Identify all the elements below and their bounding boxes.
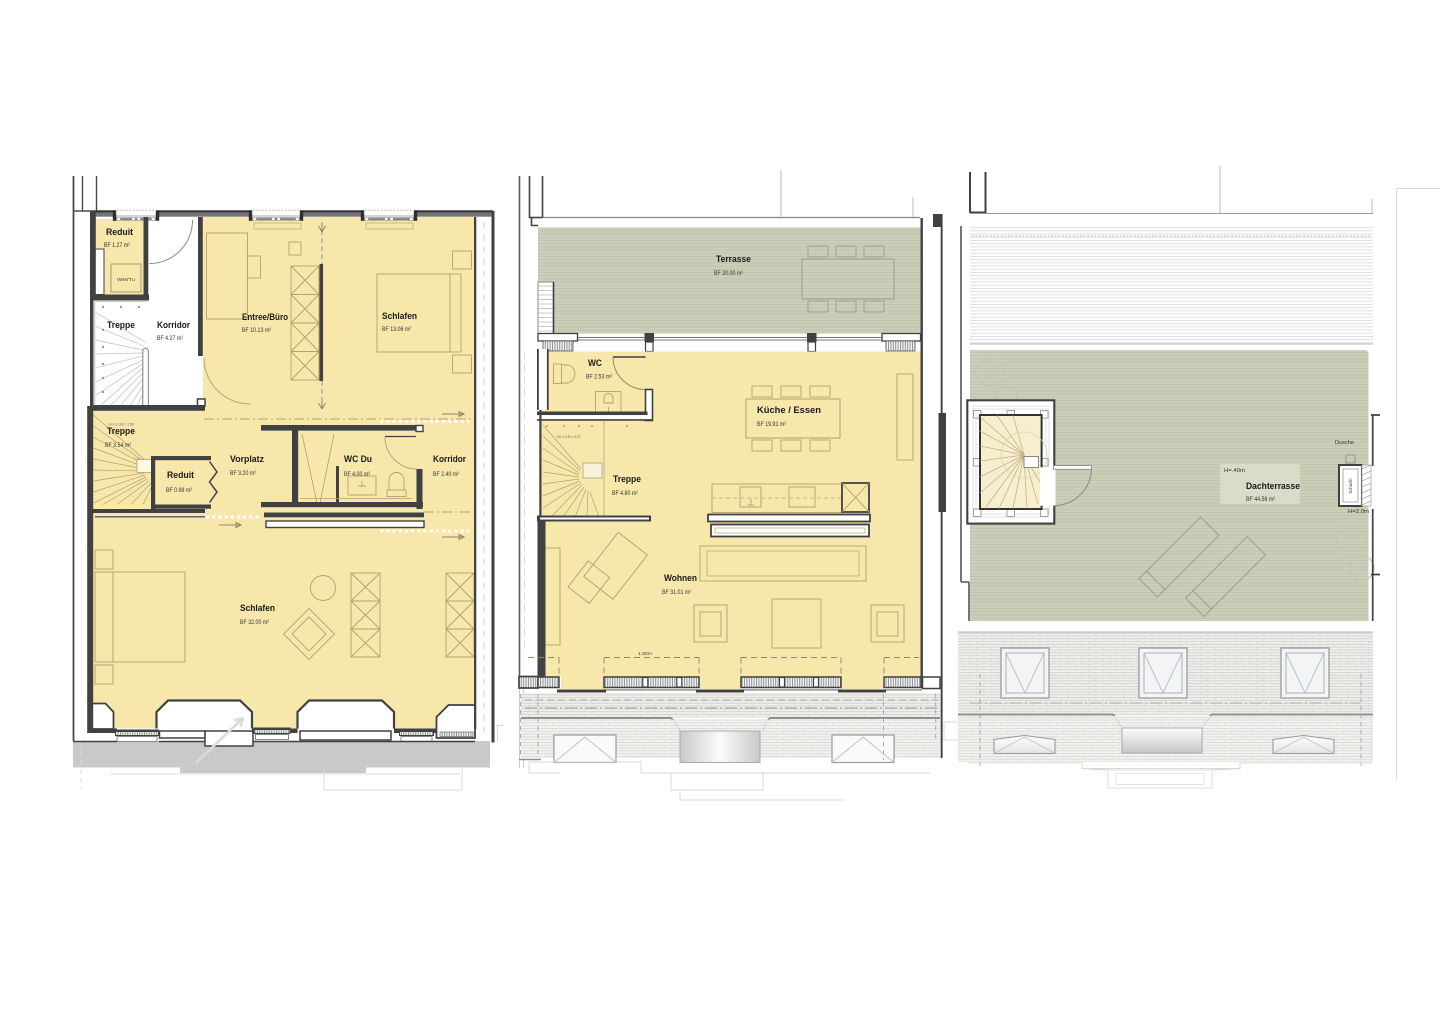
svg-text:Korridor: Korridor — [157, 320, 190, 331]
svg-text:Dusche: Dusche — [1335, 440, 1354, 446]
svg-text:BF 31.01 m²: BF 31.01 m² — [662, 590, 691, 596]
svg-text:WC: WC — [588, 358, 602, 369]
svg-text:WM/Tu: WM/Tu — [117, 277, 136, 282]
svg-text:BF 32.00 m²: BF 32.00 m² — [240, 620, 269, 626]
svg-text:BF 44.56 m²: BF 44.56 m² — [1246, 497, 1275, 503]
svg-text:Küche / Essen: Küche / Essen — [757, 405, 821, 416]
svg-text:BF 2.53 m²: BF 2.53 m² — [586, 375, 612, 381]
svg-text:Korridor: Korridor — [433, 454, 466, 465]
svg-text:Vorplatz: Vorplatz — [230, 454, 264, 465]
svg-text:Schacht: Schacht — [1348, 478, 1353, 494]
svg-text:WC Du: WC Du — [344, 454, 372, 465]
svg-text:BF 4.27 m²: BF 4.27 m² — [157, 336, 183, 342]
svg-text:BF 4.00 m²: BF 4.00 m² — [344, 472, 370, 478]
svg-text:BF 19.91 m²: BF 19.91 m² — [757, 422, 786, 428]
svg-text:Reduit: Reduit — [167, 470, 195, 481]
svg-text:Schlafen: Schlafen — [382, 311, 417, 322]
svg-text:Schlafen: Schlafen — [240, 603, 275, 614]
svg-text:Treppe: Treppe — [107, 320, 135, 331]
svg-text:H=.40m: H=.40m — [1224, 468, 1245, 474]
svg-text:Wohnen: Wohnen — [664, 573, 697, 584]
svg-text:Entree/Büro: Entree/Büro — [242, 312, 288, 323]
svg-text:BF 4.80 m²: BF 4.80 m² — [612, 491, 638, 497]
svg-text:BF 13.06 m²: BF 13.06 m² — [382, 327, 411, 333]
svg-text:H=2.0m: H=2.0m — [1348, 509, 1369, 515]
svg-text:BF 1.27 m²: BF 1.27 m² — [104, 243, 130, 249]
svg-text:BF 20.00 m²: BF 20.00 m² — [714, 271, 743, 277]
svg-text:BF 3.20 m²: BF 3.20 m² — [230, 471, 256, 477]
svg-text:Dachterrasse: Dachterrasse — [1246, 481, 1300, 492]
svg-text:BF 0.98 m²: BF 0.98 m² — [166, 488, 192, 494]
svg-text:Reduit: Reduit — [106, 227, 134, 238]
svg-text:Treppe: Treppe — [107, 426, 135, 437]
svg-text:BF 2.40 m²: BF 2.40 m² — [433, 472, 459, 478]
svg-text:BF 10.13 m²: BF 10.13 m² — [242, 328, 271, 334]
svg-text:BF 3.54 m²: BF 3.54 m² — [105, 443, 131, 449]
svg-text:Nx 0.18 x 0.27: Nx 0.18 x 0.27 — [557, 435, 581, 439]
svg-text:Terrasse: Terrasse — [716, 254, 751, 265]
svg-text:1.50m: 1.50m — [638, 651, 652, 656]
svg-text:Treppe: Treppe — [613, 474, 641, 485]
